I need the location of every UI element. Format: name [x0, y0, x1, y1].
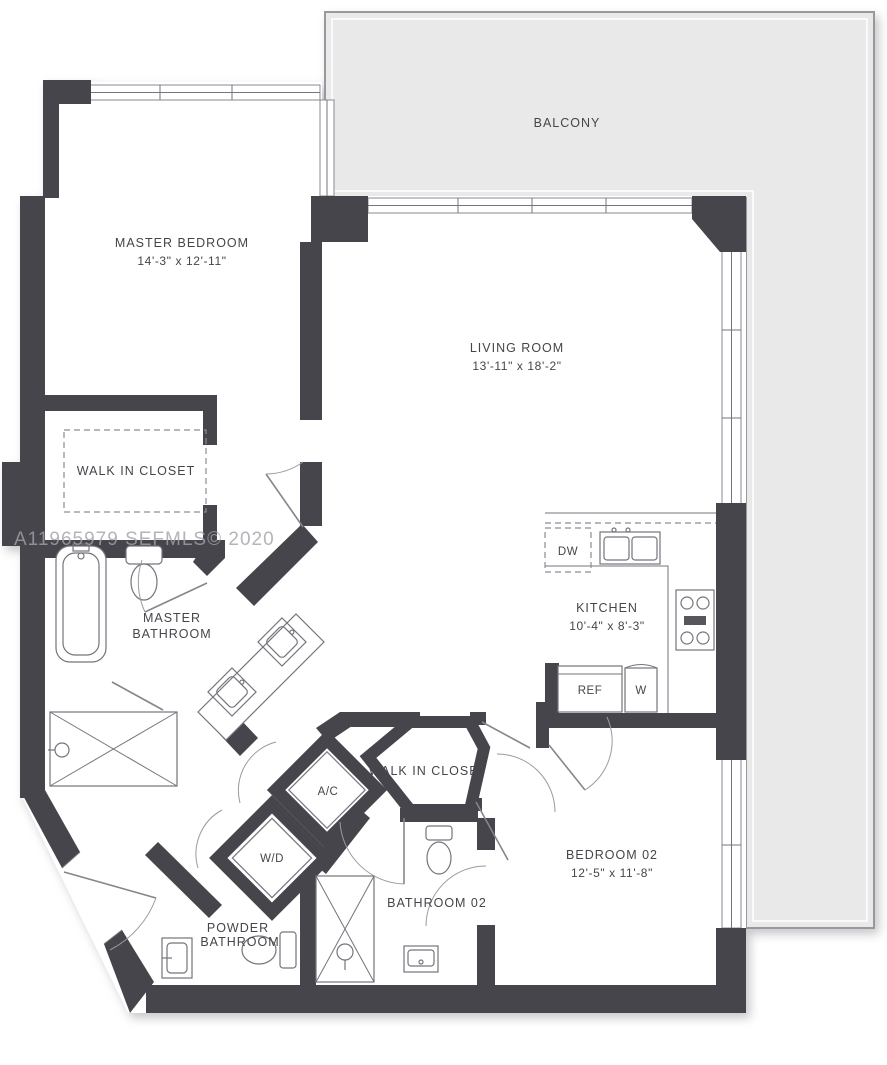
master-bathroom-label-2: BATHROOM — [132, 627, 211, 641]
plan: BALCONY MASTER BEDROOM 14'-3" x 12'-11" … — [2, 12, 874, 1013]
washer-label: W — [635, 685, 646, 697]
master-bedroom-dims: 14'-3" x 12'-11" — [137, 254, 226, 268]
powder-bathroom-label-2: BATHROOM — [200, 935, 279, 949]
master-bathroom-label-1: MASTER — [143, 611, 201, 625]
ac-label: A/C — [318, 786, 339, 798]
bedroom-02-window — [722, 758, 741, 928]
bathtub — [56, 544, 106, 662]
walk-in-closet-1-label: WALK IN CLOSET — [77, 464, 195, 478]
stove — [676, 590, 714, 650]
toilet-02 — [426, 826, 452, 874]
master-bedroom-window — [90, 85, 320, 100]
bathroom-02-label: BATHROOM 02 — [387, 896, 487, 910]
master-bedroom-side-window — [320, 100, 334, 196]
dishwasher-label: DW — [558, 546, 578, 558]
powder-bathroom-label-1: POWDER — [207, 921, 269, 935]
bedroom-02-dims: 12'-5" x 11'-8" — [571, 866, 653, 880]
balcony-label: BALCONY — [534, 116, 601, 130]
living-room-top-window — [368, 198, 692, 213]
floor-plan-page: BALCONY MASTER BEDROOM 14'-3" x 12'-11" … — [0, 0, 887, 1065]
kitchen-dims: 10'-4" x 8'-3" — [569, 619, 645, 633]
living-room-dims: 13'-11" x 18'-2" — [472, 359, 561, 373]
living-room-right-window — [722, 242, 741, 504]
shower-02 — [316, 876, 374, 982]
powder-sink — [162, 938, 192, 978]
living-room-label: LIVING ROOM — [470, 341, 564, 355]
floor-plan: BALCONY MASTER BEDROOM 14'-3" x 12'-11" … — [0, 0, 887, 1065]
sink-02 — [404, 946, 438, 972]
master-bedroom-label: MASTER BEDROOM — [115, 236, 249, 250]
walk-in-closet-2-label: WALK IN CLOSET — [369, 764, 487, 778]
mls-watermark: A11965979 SEFMLS© 2020 — [14, 529, 275, 550]
kitchen-sink — [600, 528, 660, 564]
refrigerator-label: REF — [578, 685, 603, 697]
bedroom-02-label: BEDROOM 02 — [566, 848, 658, 862]
kitchen-label: KITCHEN — [576, 601, 638, 615]
wd-label: W/D — [260, 853, 284, 865]
